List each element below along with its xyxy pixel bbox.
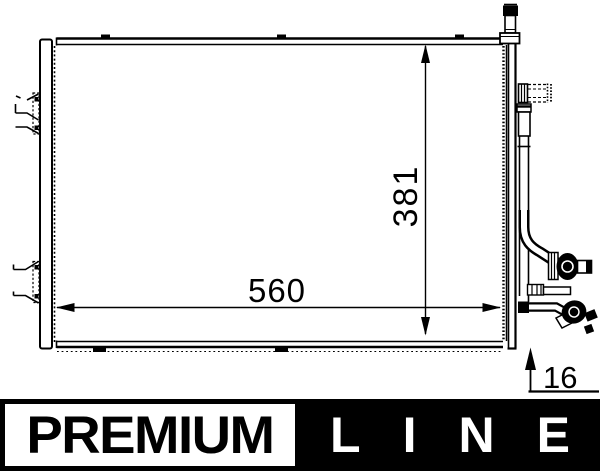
- mounting-bracket-upper: [16, 93, 40, 134]
- technical-drawing-page: 381 560 16 PREMIUM LINE: [0, 0, 600, 471]
- pipe-assembly: [517, 104, 571, 313]
- dim-arrow-down: [421, 317, 430, 336]
- dim-height-381: 381: [387, 45, 430, 336]
- dim-height-label: 381: [387, 165, 425, 228]
- pipe-fitting-upper: [549, 253, 593, 281]
- left-tank: [40, 40, 55, 349]
- dim-arrow-up-small: [525, 348, 536, 371]
- pipe-fitting-lower: [556, 294, 598, 334]
- dim-arrow-up: [421, 45, 430, 64]
- condenser-drawing: 381 560 16: [0, 0, 600, 398]
- logo-line-box: LINE: [300, 399, 600, 471]
- side-port-fitting: [519, 84, 552, 104]
- logo-premium-text: PREMIUM: [27, 405, 274, 466]
- top-tab: [277, 35, 286, 39]
- dim-depth-label: 16: [543, 360, 577, 395]
- top-tab: [455, 35, 464, 39]
- premium-line-logo: PREMIUM LINE: [0, 399, 600, 471]
- right-tank: [508, 43, 517, 349]
- dim-width-560: 560: [56, 272, 501, 312]
- top-port-fitting: [500, 5, 520, 44]
- mounting-bracket-lower: [14, 262, 40, 304]
- dim-arrow-right: [483, 303, 502, 312]
- dim-width-label: 560: [248, 272, 306, 309]
- logo-premium-box: PREMIUM: [0, 399, 300, 471]
- logo-line-text: LINE: [330, 406, 600, 464]
- bottom-tab: [275, 348, 288, 353]
- dim-arrow-left: [56, 303, 75, 312]
- top-tab: [101, 35, 110, 39]
- dim-depth-16: 16: [525, 348, 599, 396]
